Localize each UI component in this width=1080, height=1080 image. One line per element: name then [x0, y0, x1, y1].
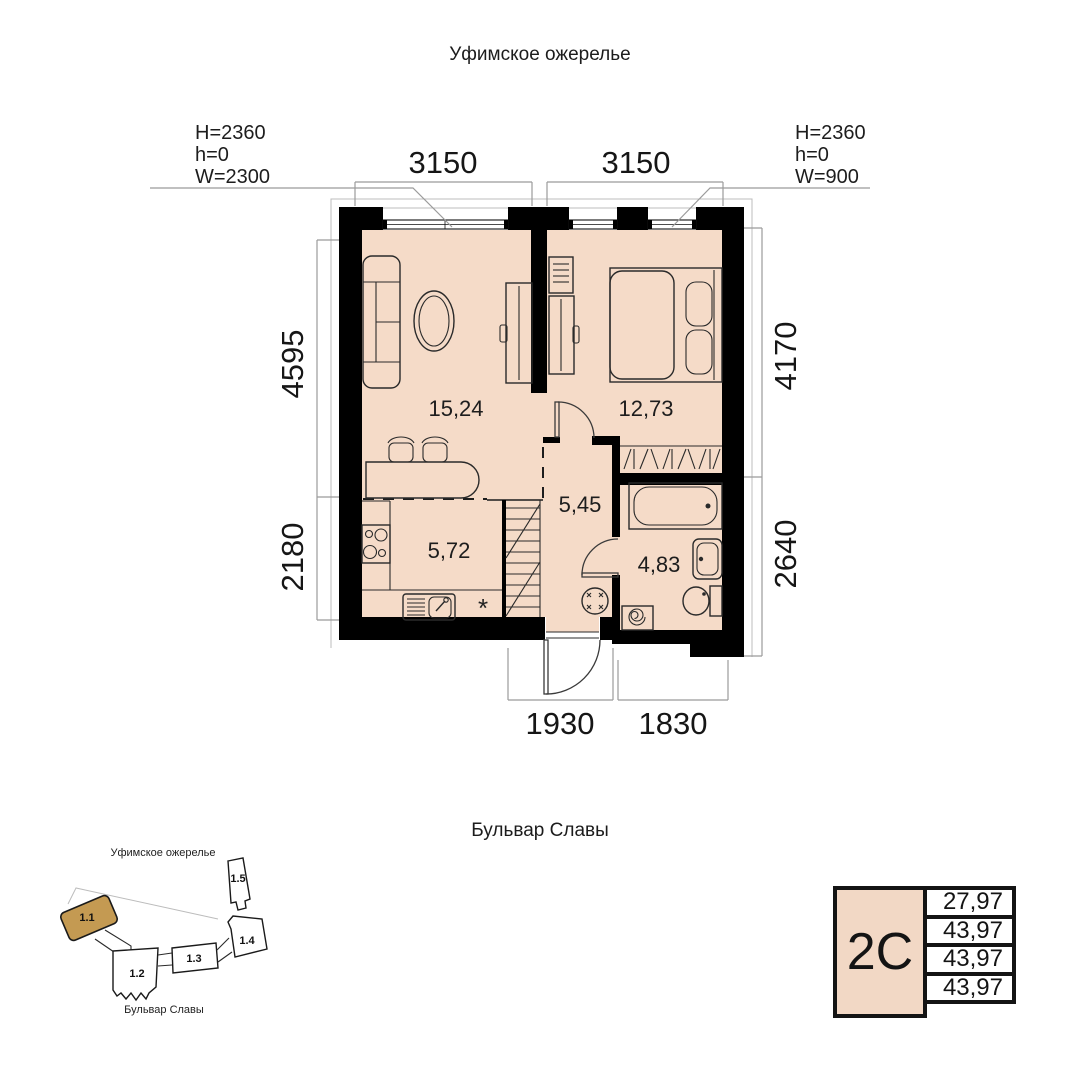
annotation-left-w: W=2300 — [195, 166, 270, 188]
dim-bottom-right: 1830 — [639, 706, 708, 741]
window-annotations: H=2360 h=0 W=2300 H=2360 h=0 W=900 — [195, 122, 866, 188]
dim-top-left: 3150 — [409, 145, 478, 180]
annotation-right-h: H=2360 — [795, 122, 866, 144]
apartment-areas-column: 27,97 43,97 43,97 43,97 — [923, 886, 1016, 1018]
bathroom-area-label: 4,83 — [638, 552, 681, 577]
site-street-top: Уфимское ожерелье — [110, 847, 215, 859]
dim-left-top: 4595 — [275, 330, 310, 399]
site-connector-2 — [158, 953, 172, 966]
living-window — [383, 208, 508, 229]
hall-area-label: 5,45 — [559, 492, 602, 517]
dim-left-bottom: 2180 — [275, 523, 310, 592]
annotation-left-h2: h=0 — [195, 144, 229, 166]
bedroom-window-right — [648, 208, 696, 229]
annotation-left-h: H=2360 — [195, 122, 266, 144]
dim-top-right: 3150 — [602, 145, 671, 180]
annotation-right-w: W=900 — [795, 166, 859, 188]
bedroom-window-left — [569, 208, 617, 229]
apartment-info-table: 2С 27,97 43,97 43,97 43,97 — [833, 886, 1016, 1018]
living-area-label: 15,24 — [428, 396, 483, 421]
dim-bottom-left: 1930 — [526, 706, 595, 741]
dim-right-top: 4170 — [768, 322, 803, 391]
floorplan-page: { "titles": { "top": "Уфимское ожерелье"… — [0, 0, 1080, 1080]
annotation-right-h2: h=0 — [795, 144, 829, 166]
entrance-door — [544, 632, 600, 694]
site-street-bottom: Бульвар Славы — [124, 1004, 204, 1016]
site-label-1-4: 1.4 — [239, 935, 255, 947]
site-plan: 1.1 1.2 1.3 1.4 1.5 Уфимское ожерелье Бу… — [59, 847, 267, 1016]
dim-right-bottom: 2640 — [768, 520, 803, 589]
apartment-type-cell: 2С — [833, 886, 927, 1018]
site-connector-3 — [217, 938, 232, 962]
bedroom-area-label: 12,73 — [618, 396, 673, 421]
area-value-4: 43,97 — [923, 972, 1016, 1005]
kitchen-note-asterisk: * — [478, 593, 488, 623]
site-label-1-3: 1.3 — [186, 953, 201, 965]
site-label-1-2: 1.2 — [129, 968, 144, 980]
kitchen-area-label: 5,72 — [428, 538, 471, 563]
site-label-1-1: 1.1 — [79, 912, 94, 924]
site-label-1-5: 1.5 — [230, 873, 245, 885]
